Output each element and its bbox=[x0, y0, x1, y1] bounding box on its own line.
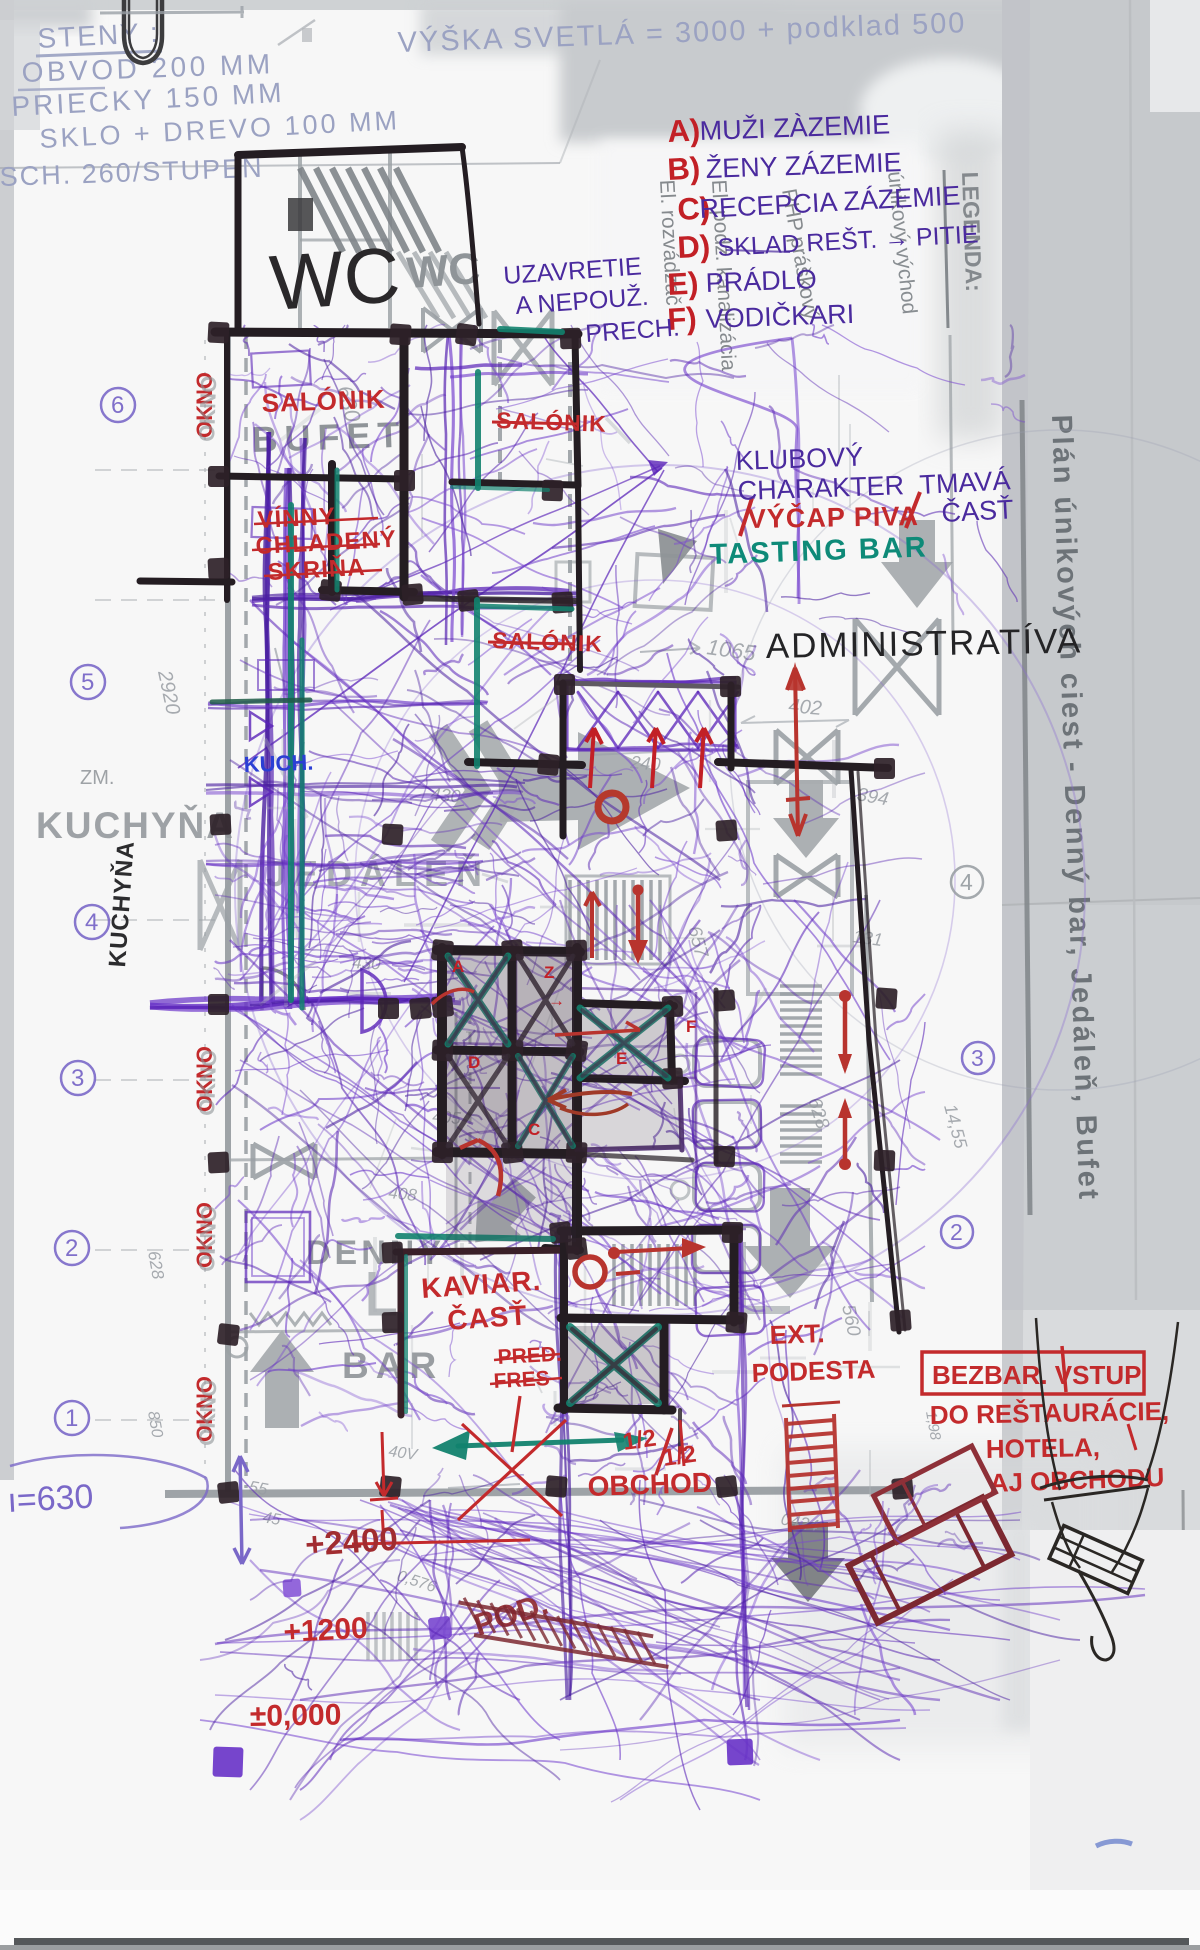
svg-text:SKRIŇA: SKRIŇA bbox=[267, 553, 366, 586]
svg-text:BEZBAR. VSTUP: BEZBAR. VSTUP bbox=[932, 1360, 1141, 1390]
svg-text:402: 402 bbox=[788, 695, 823, 720]
svg-text:→: → bbox=[548, 991, 565, 1010]
svg-text:Z: Z bbox=[544, 963, 554, 982]
svg-text:3: 3 bbox=[71, 1065, 84, 1092]
svg-text:3: 3 bbox=[971, 1045, 984, 1071]
svg-text:KUCH.: KUCH. bbox=[243, 750, 314, 777]
svg-text:ČASŤ: ČASŤ bbox=[941, 493, 1015, 528]
svg-text:A: A bbox=[452, 957, 464, 976]
svg-text:+2400: +2400 bbox=[304, 1520, 399, 1563]
svg-text:ČASŤ: ČASŤ bbox=[446, 1298, 528, 1336]
svg-text:KLUBOVÝ: KLUBOVÝ bbox=[735, 442, 864, 476]
svg-text:PODESTA: PODESTA bbox=[751, 1354, 876, 1388]
svg-text:OKNO: OKNO bbox=[194, 1379, 221, 1446]
svg-text:B): B) bbox=[667, 150, 702, 187]
svg-text:4: 4 bbox=[960, 869, 973, 895]
svg-text:E): E) bbox=[667, 265, 700, 302]
svg-text:HOTELA,: HOTELA, bbox=[986, 1432, 1101, 1464]
svg-text:C: C bbox=[528, 1120, 540, 1139]
svg-text:PRÁDLO: PRÁDLO bbox=[705, 264, 817, 298]
svg-text:1: 1 bbox=[65, 1405, 78, 1432]
svg-text:KUCHYŇA: KUCHYŇA bbox=[36, 804, 235, 846]
svg-text:OKNO: OKNO bbox=[194, 375, 221, 442]
svg-text:WC: WC bbox=[405, 244, 482, 298]
svg-text:ZM.: ZM. bbox=[80, 767, 114, 789]
svg-text:F: F bbox=[686, 1017, 696, 1036]
svg-text:WC: WC bbox=[267, 230, 403, 327]
svg-text:OKNO: OKNO bbox=[194, 1205, 221, 1272]
svg-text:A): A) bbox=[667, 112, 702, 149]
svg-text:4: 4 bbox=[85, 909, 98, 936]
svg-text:6: 6 bbox=[111, 392, 124, 419]
svg-text:±0,000: ±0,000 bbox=[250, 1698, 342, 1733]
svg-text:CHARAKTER: CHARAKTER bbox=[737, 470, 904, 506]
svg-text:EXT.: EXT. bbox=[769, 1318, 825, 1350]
svg-text:SALÓNIK: SALÓNIK bbox=[261, 384, 386, 418]
svg-text:D: D bbox=[468, 1053, 480, 1072]
svg-text:VODIČKARI: VODIČKARI bbox=[705, 298, 855, 334]
svg-text:+1200: +1200 bbox=[283, 1612, 369, 1649]
svg-text:VÝČAP PIVA: VÝČAP PIVA bbox=[748, 500, 920, 534]
svg-text:DO REŠTAURÁCIE,: DO REŠTAURÁCIE, bbox=[930, 1396, 1170, 1430]
svg-text:5: 5 bbox=[81, 669, 94, 696]
svg-text:ADMINISTRATÍVA: ADMINISTRATÍVA bbox=[765, 621, 1082, 666]
svg-text:1/2: 1/2 bbox=[621, 1425, 658, 1456]
svg-text:STENY :: STENY : bbox=[37, 17, 161, 54]
svg-text:E: E bbox=[616, 1049, 627, 1068]
svg-text:240: 240 bbox=[629, 752, 662, 775]
svg-text:2: 2 bbox=[950, 1219, 963, 1245]
svg-text:2: 2 bbox=[65, 1235, 78, 1262]
svg-text:ı=630: ı=630 bbox=[6, 1478, 94, 1520]
svg-text:OBCHOD: OBCHOD bbox=[587, 1467, 712, 1502]
svg-text:OKNO: OKNO bbox=[194, 1049, 221, 1116]
svg-text:D): D) bbox=[677, 228, 712, 265]
